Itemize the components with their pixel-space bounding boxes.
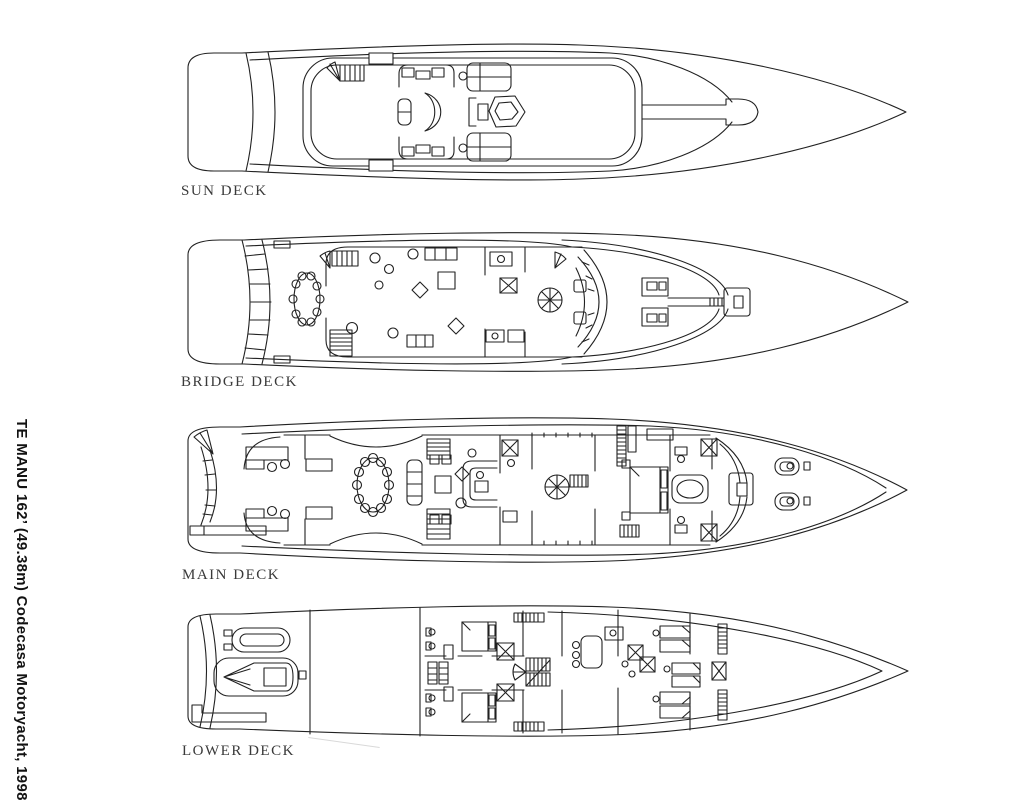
bridge-deck-section <box>180 230 916 380</box>
sun-deck-section <box>180 38 912 191</box>
deck-label-main: MAIN DECK <box>182 567 280 584</box>
main-deck-drawing <box>180 413 920 565</box>
main-deck-section <box>180 413 920 570</box>
deck-label-bridge: BRIDGE DECK <box>181 374 298 391</box>
deck-label-sun: SUN DECK <box>181 183 268 200</box>
lower-deck-drawing <box>180 600 920 745</box>
deck-label-lower: LOWER DECK <box>182 743 295 760</box>
yacht-title-vertical: TE MANU 162’ (49.38m) Codecasa Motoryach… <box>13 419 30 801</box>
bridge-deck-drawing <box>180 230 916 375</box>
lower-deck-section <box>180 600 920 750</box>
scanned-deck-plan-sheet: { "page": { "background_color": "#ffffff… <box>0 0 1024 786</box>
sun-deck-drawing <box>180 38 912 186</box>
